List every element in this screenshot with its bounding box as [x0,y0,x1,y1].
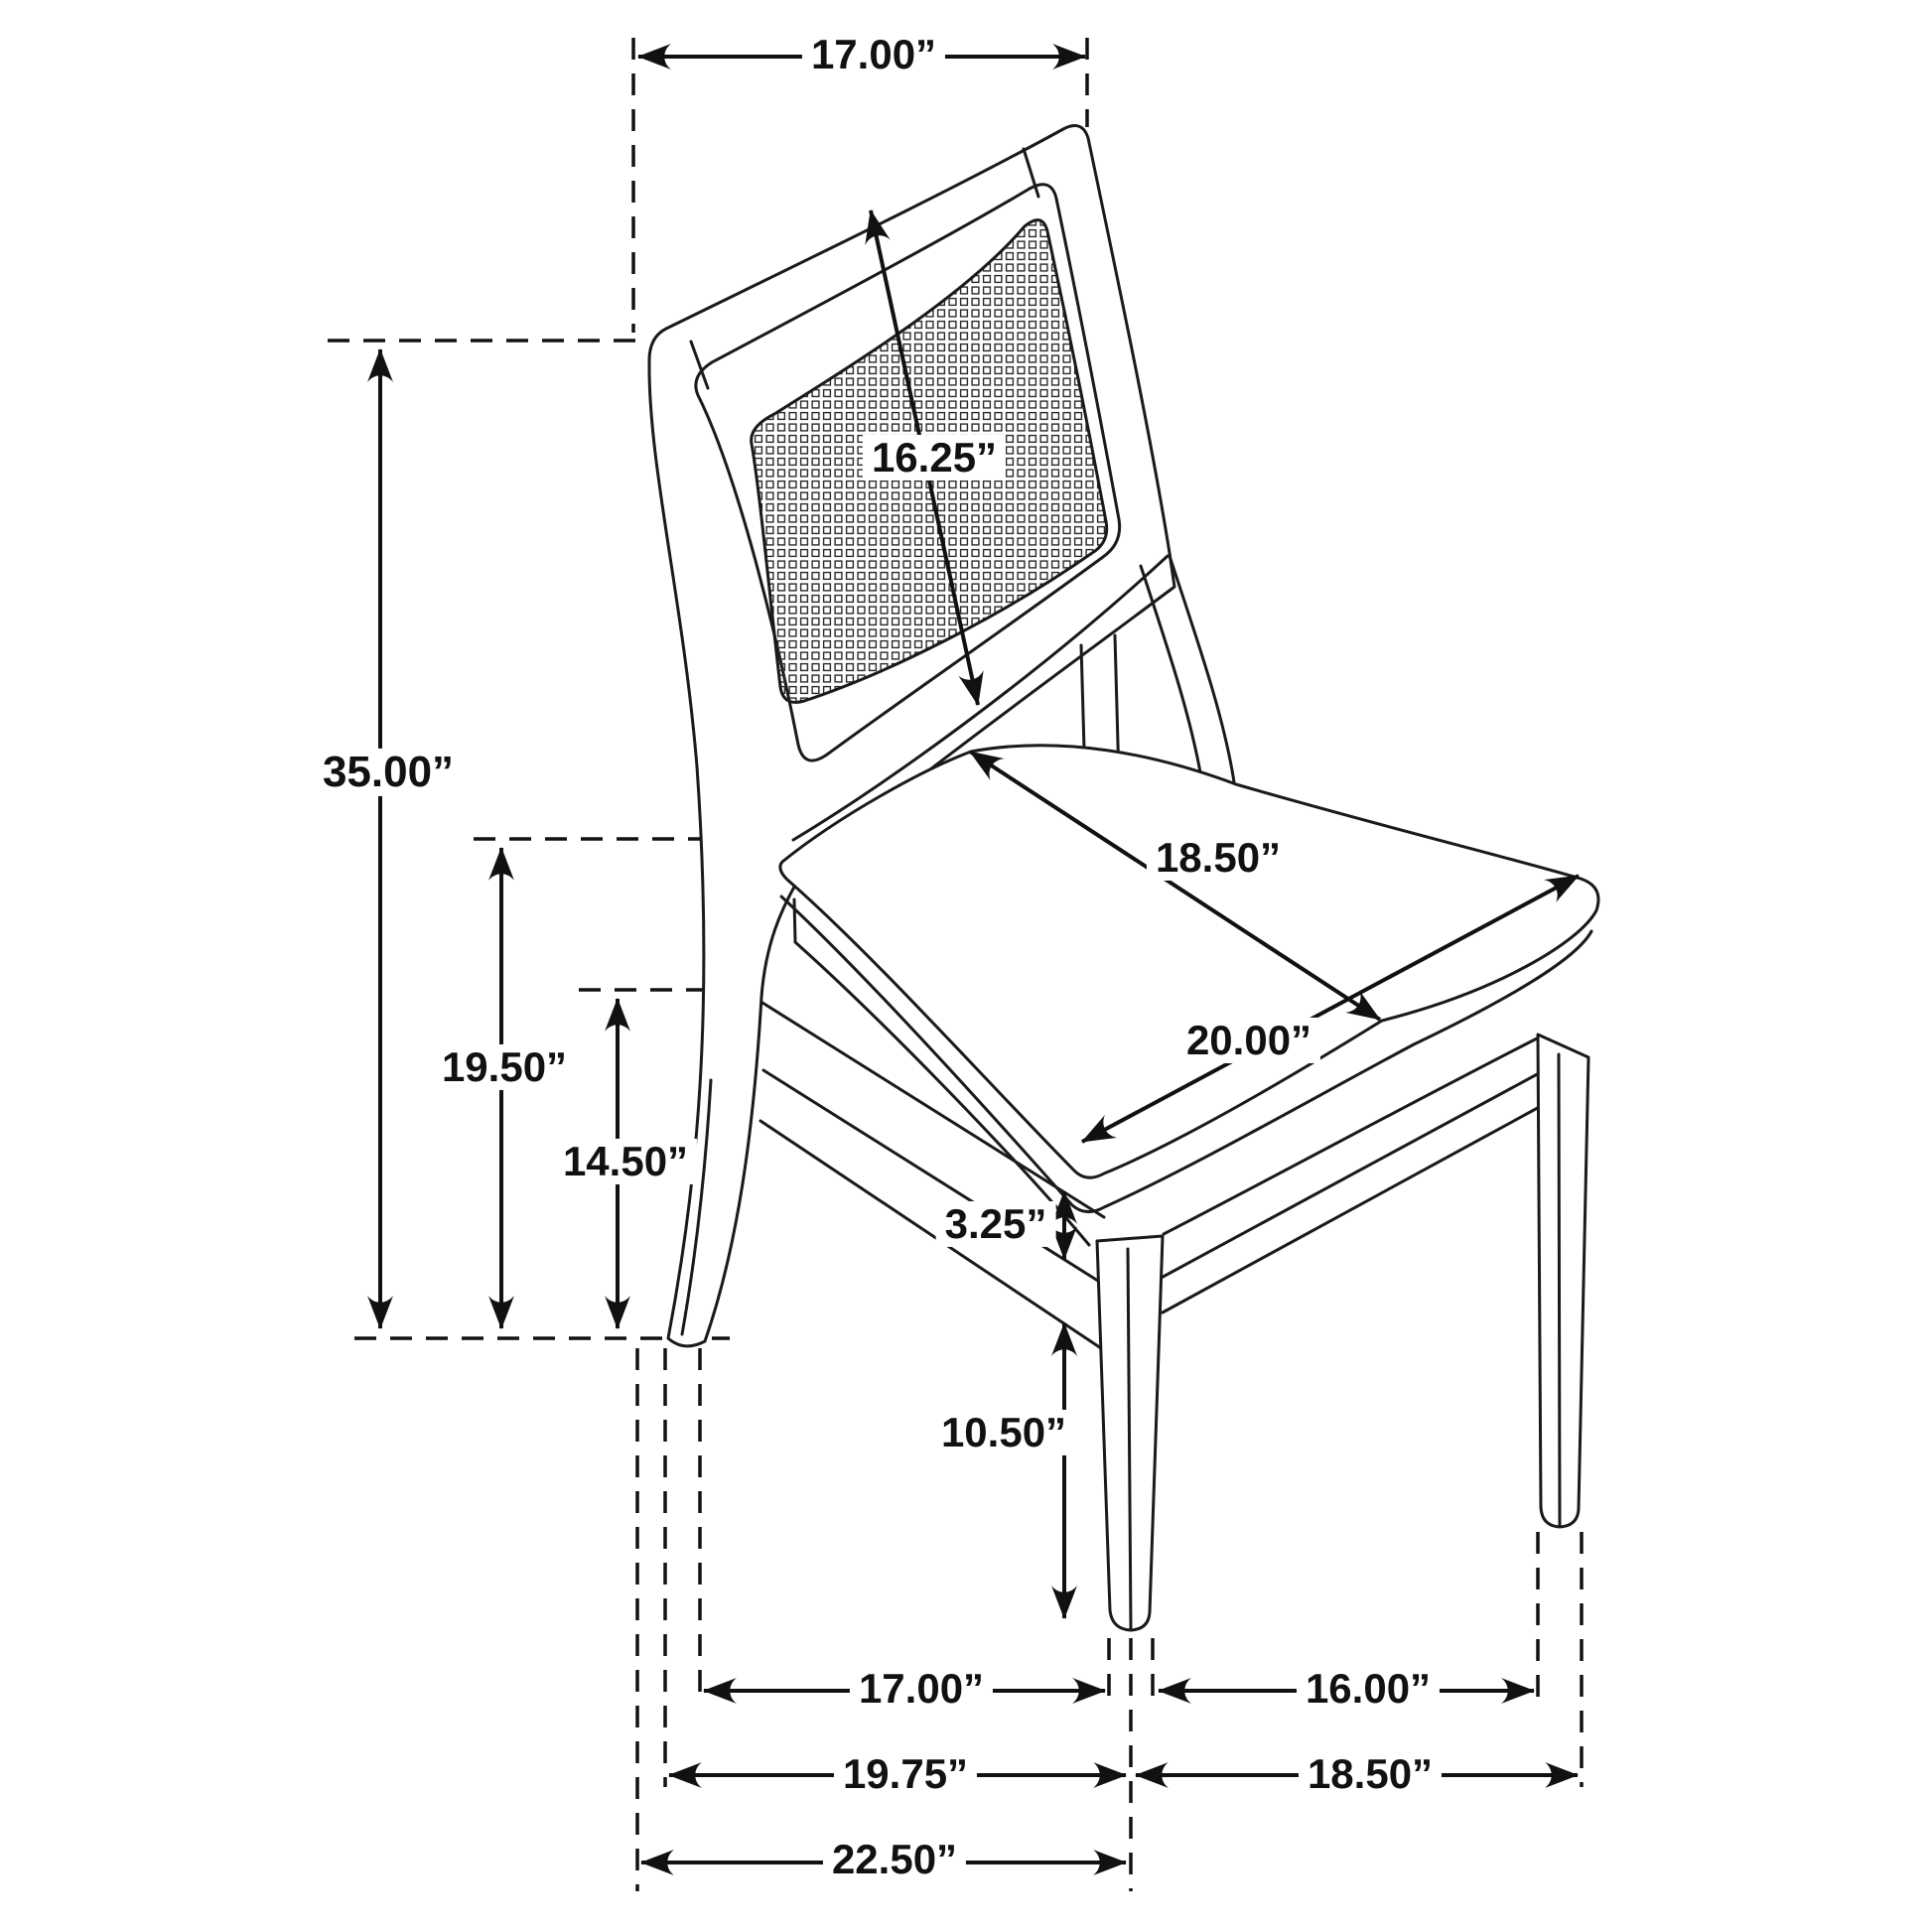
dim-label-overall-height: 35.00” [314,749,463,796]
right-leg [1538,1035,1588,1527]
dim-label-overall-depth: 22.50” [823,1837,966,1882]
dim-label-seat-height: 19.50” [433,1044,576,1090]
dim-label-stretcher-thickness: 3.25” [936,1201,1056,1247]
dim-label-seat-width: 20.00” [1177,1018,1320,1063]
right-leg-crease [1559,1054,1560,1525]
dim-label-stretcher-clearance: 10.50” [932,1410,1075,1455]
dim-label-stretcher-top-height: 14.50” [554,1139,697,1184]
diagram-canvas [0,0,1932,1932]
chair-line-art [649,126,1598,1630]
dim-label-back-height: 16.25” [863,435,1006,481]
dim-label-seat-depth: 18.50” [1147,835,1290,881]
dim-label-leg-spacing-side: 17.00” [850,1666,993,1712]
dim-label-base-depth: 19.75” [834,1751,977,1797]
dim-label-base-width: 18.50” [1299,1751,1442,1797]
seat-cushion [780,746,1598,1177]
dimension-diagram: 17.00” 16.25” 35.00” 19.50” 14.50” 18.50… [0,0,1932,1932]
dim-label-leg-spacing-front: 16.00” [1297,1666,1440,1712]
dim-label-back-top-width: 17.00” [802,32,945,77]
